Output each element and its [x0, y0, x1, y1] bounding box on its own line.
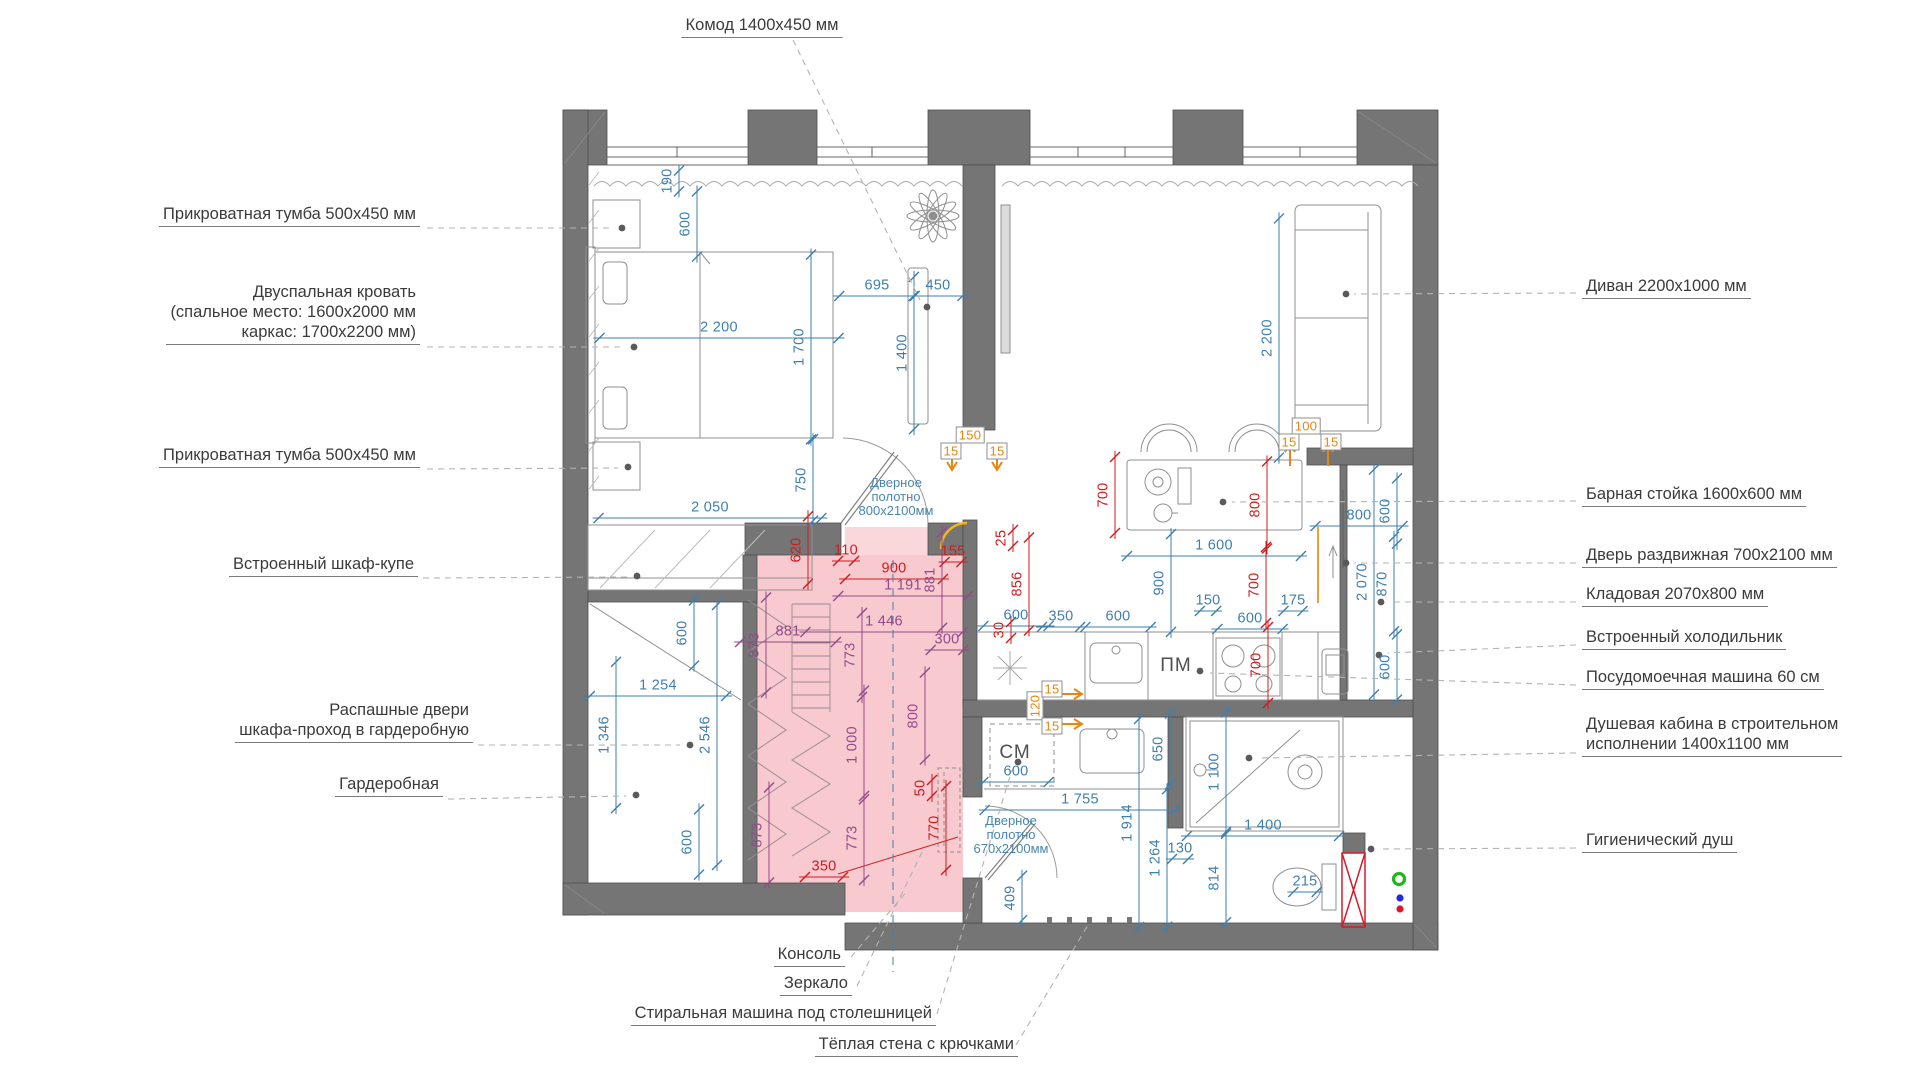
dimension-label: 2 200 [700, 321, 738, 336]
dimension-label: 600 [1003, 765, 1028, 780]
dimension-label: 881 [924, 567, 939, 592]
leader-line [1232, 501, 1576, 502]
callout-shower-cabin: Душевая кабина в строительномисполнении … [1582, 714, 1842, 757]
nightstand [593, 200, 640, 248]
door-leaf-670: Дверноеполотно670х2100мм [974, 814, 1049, 856]
leader-dot [687, 742, 694, 749]
dimension-label: 2 200 [1261, 319, 1276, 357]
dimension-label: 15 [940, 443, 961, 460]
kitchen-sink [1090, 643, 1142, 683]
dishwasher-code: ПМ [1160, 655, 1191, 677]
plant-icon [907, 190, 959, 242]
leader-dot [1197, 668, 1204, 675]
marker-red [1396, 905, 1403, 912]
dimension-label: 773 [844, 642, 859, 667]
dimension-label: 2 070 [1356, 563, 1371, 601]
dimension-label: 600 [681, 829, 696, 854]
dimension-label: 773 [846, 825, 861, 850]
dimension-label: 15 [986, 443, 1007, 460]
dimension-label: 770 [928, 815, 943, 840]
dimension-label: 110 [834, 544, 858, 559]
dimension-label: 600 [676, 620, 691, 645]
dimension-label: 700 [1097, 482, 1112, 507]
leader-dot [1246, 755, 1253, 762]
nightstand [593, 442, 640, 490]
callout-nightstand-1: Прикроватная тумба 500х450 мм [159, 204, 420, 227]
dimension-label: 1 914 [1121, 804, 1136, 842]
marker-green [1394, 874, 1405, 885]
dimension-label: 350 [1048, 610, 1073, 625]
dimension-label: 650 [1152, 736, 1167, 761]
dimension-label: 800 [1346, 509, 1371, 524]
dimension-label: 695 [864, 279, 889, 294]
dimension-label: 800 [1249, 492, 1264, 517]
orange-arrows [947, 444, 1333, 729]
leader-dot [625, 464, 632, 471]
dimension-label: 30 [993, 622, 1008, 639]
direction-arrow [1329, 546, 1337, 578]
callout-dishwasher: Посудомоечная машина 60 см [1582, 667, 1824, 690]
dimension-label: 881 [775, 625, 800, 640]
dimension-label: 750 [795, 467, 810, 492]
sofa [1295, 205, 1381, 431]
dimension-label: 900 [1153, 570, 1168, 595]
dimension-label: 350 [811, 860, 836, 875]
pillow [603, 262, 627, 304]
light-symbol [993, 651, 1027, 685]
leader-dot [634, 573, 641, 580]
leader-dot [1378, 599, 1385, 606]
dimension-label: 1 400 [896, 334, 911, 372]
dimension-label: 1 400 [1244, 819, 1282, 834]
callout-kladovaya: Кладовая 2070х800 мм [1582, 584, 1768, 607]
curtain-wave [594, 182, 962, 187]
leader-dot [1368, 846, 1375, 853]
dimension-label: 450 [925, 279, 950, 294]
dimension-label: 600 [679, 211, 694, 236]
callout-warm-wall: Тёплая стена с крючками [815, 1034, 1018, 1057]
marker-blue [1396, 894, 1403, 901]
dimension-label: 856 [1011, 571, 1026, 596]
blanket-edge [700, 252, 710, 438]
dimension-label: 15 [1320, 434, 1341, 451]
callout-bed: Двуспальная кровать(спальное место: 1600… [166, 282, 420, 345]
dimension-label: 175 [1280, 594, 1305, 609]
dimension-label: 300 [934, 633, 959, 648]
dimension-label: 620 [790, 537, 805, 562]
callout-bar-counter: Барная стойка 1600х600 мм [1582, 484, 1806, 507]
dimension-label: 25 [995, 530, 1010, 547]
dimension-label: 1 755 [1061, 793, 1099, 808]
leader-dot [633, 792, 640, 799]
dimension-label: 1 446 [865, 615, 903, 630]
dimension-label: 1 600 [1195, 539, 1233, 554]
dimension-label: 15 [1041, 681, 1062, 698]
floor-plan-drawing [0, 0, 1919, 1079]
dimension-label: 1 000 [846, 726, 861, 764]
dimension-label: 1 100 [1208, 753, 1223, 791]
dimension-label: 873 [748, 632, 763, 657]
callout-washing-machine: Стиральная машина под столешницей [631, 1003, 936, 1026]
dimension-label: 900 [881, 562, 906, 577]
leader-line [448, 796, 626, 799]
dimension-label: 1 346 [598, 716, 613, 754]
dimension-label: 700 [1250, 652, 1265, 677]
callout-sliding-door: Дверь раздвижная 700х2100 мм [1582, 545, 1837, 568]
leader-dot [631, 344, 638, 351]
door-leaf-800: Дверноеполотно800х2100мм [859, 476, 934, 518]
pillow [603, 387, 627, 429]
callout-hygienic-shower: Гигиенический душ [1582, 830, 1737, 853]
dimension-label: 814 [1208, 865, 1223, 890]
callout-swing-doors: Распашные дверишкафа-проход в гардеробну… [235, 700, 473, 743]
bar-stool [1229, 424, 1285, 452]
leader-dot [1343, 560, 1350, 567]
curtain-wave [1002, 182, 1418, 187]
dimension-label: 600 [1379, 654, 1394, 679]
dimension-label: 155 [940, 545, 965, 560]
dimension-label: 15 [1278, 434, 1299, 451]
dimension-label: 150 [956, 427, 985, 444]
callout-built-in-wardrobe: Встроенный шкаф-купе [229, 554, 418, 577]
leader-line [1380, 848, 1576, 849]
kitchen-counter [977, 632, 1340, 700]
callout-nightstand-2: Прикроватная тумба 500х450 мм [159, 445, 420, 468]
dimension-label: 600 [1105, 610, 1130, 625]
dimension-label: 190 [661, 168, 676, 193]
dimension-label: 1 191 [884, 579, 922, 594]
bath-sink [1080, 729, 1144, 773]
leader-line [1354, 293, 1576, 294]
leader-dot [619, 225, 626, 232]
callout-komod: Комод 1400х450 мм [682, 15, 843, 38]
riser-shaft [1342, 853, 1365, 927]
callout-sofa: Диван 2200х1000 мм [1582, 276, 1751, 299]
bar-stool [1141, 424, 1197, 452]
dimension-label: 2 546 [699, 716, 714, 754]
dimension-label: 1 254 [639, 679, 677, 694]
leader-dot [1343, 291, 1350, 298]
dimension-label: 1 700 [793, 328, 808, 366]
dimension-label: 800 [907, 703, 922, 728]
leader-line [793, 40, 920, 300]
leader-dot [1220, 499, 1227, 506]
dimension-label: 50 [914, 780, 929, 797]
dimension-label: 600 [1237, 612, 1262, 627]
washer-code: СМ [999, 742, 1030, 764]
floor-plan-page: Комод 1400х450 ммПрикроватная тумба 500х… [0, 0, 1919, 1079]
callout-garderobnaya: Гардеробная [335, 774, 443, 797]
dimension-label: 130 [1167, 842, 1192, 857]
bar-table [1127, 460, 1302, 530]
dimension-label: 100 [1292, 418, 1321, 435]
dimension-label: 1 264 [1149, 839, 1164, 877]
dimension-label: 215 [1292, 875, 1317, 890]
dimension-label: 409 [1004, 885, 1019, 910]
dimension-label: 700 [1248, 572, 1263, 597]
dimension-label: 870 [1376, 571, 1391, 596]
dimension-label: 600 [1379, 498, 1394, 523]
wall-hatch [589, 172, 599, 489]
callout-mirror: Зеркало [780, 973, 852, 996]
callout-fridge: Встроенный холодильник [1582, 627, 1786, 650]
dimension-label: 150 [1195, 594, 1220, 609]
wall-hooks [1047, 917, 1132, 923]
tv [1001, 205, 1010, 353]
dimension-label: 2 050 [691, 501, 729, 516]
callout-console: Консоль [774, 944, 845, 967]
dimension-label: 15 [1041, 718, 1062, 735]
dimension-label: 873 [751, 822, 766, 847]
leader-dot [924, 304, 931, 311]
leader-line [427, 468, 618, 469]
